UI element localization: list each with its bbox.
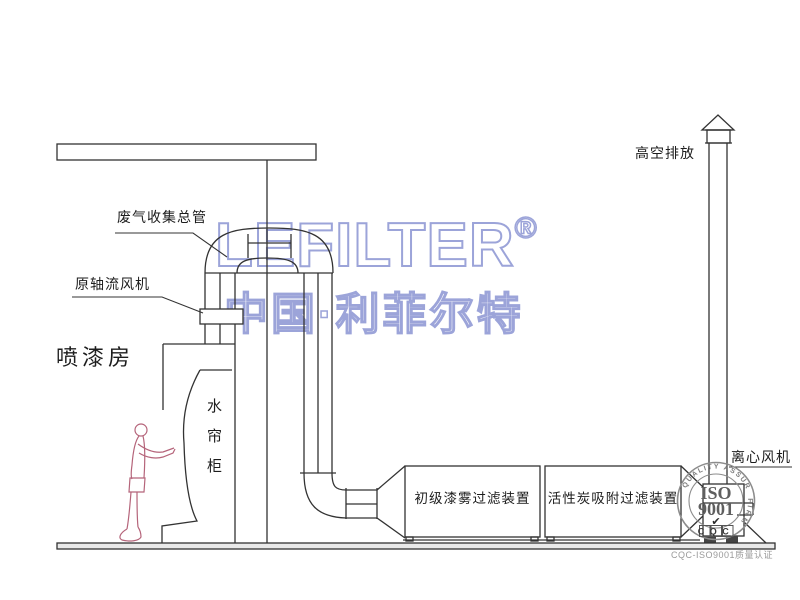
reducer-duct — [346, 466, 405, 538]
diagram-canvas: LEFILTER® 中国·利菲尔特 — [0, 0, 800, 600]
cert-caption: CQC-ISO9001质量认证 — [671, 548, 773, 561]
label-spray-room: 喷漆房 — [56, 345, 134, 370]
booth-outline — [162, 344, 235, 543]
roof-beam — [57, 144, 316, 160]
label-high-discharge: 高空排放 — [635, 145, 695, 161]
label-water-curtain: 水帘柜 — [206, 392, 223, 482]
label-axial-fan: 原轴流风机 — [75, 276, 150, 292]
label-waste-gas-main: 废气收集总管 — [117, 209, 207, 225]
iso9001-seal: QUALITY ASSURED FIRM ISO 9001 ✔ CQC — [666, 451, 766, 551]
seal-cqc-text: CQC — [698, 527, 735, 537]
chimney — [702, 115, 734, 484]
person-figure — [120, 424, 175, 541]
axial-fan-box — [200, 309, 243, 324]
collection-elbow — [205, 228, 333, 273]
label-carbon-filter: 活性炭吸附过滤装置 — [545, 491, 681, 507]
leader-lines — [72, 233, 792, 467]
down-pipe — [300, 273, 346, 518]
label-primary-filter: 初级漆雾过滤装置 — [405, 491, 540, 507]
